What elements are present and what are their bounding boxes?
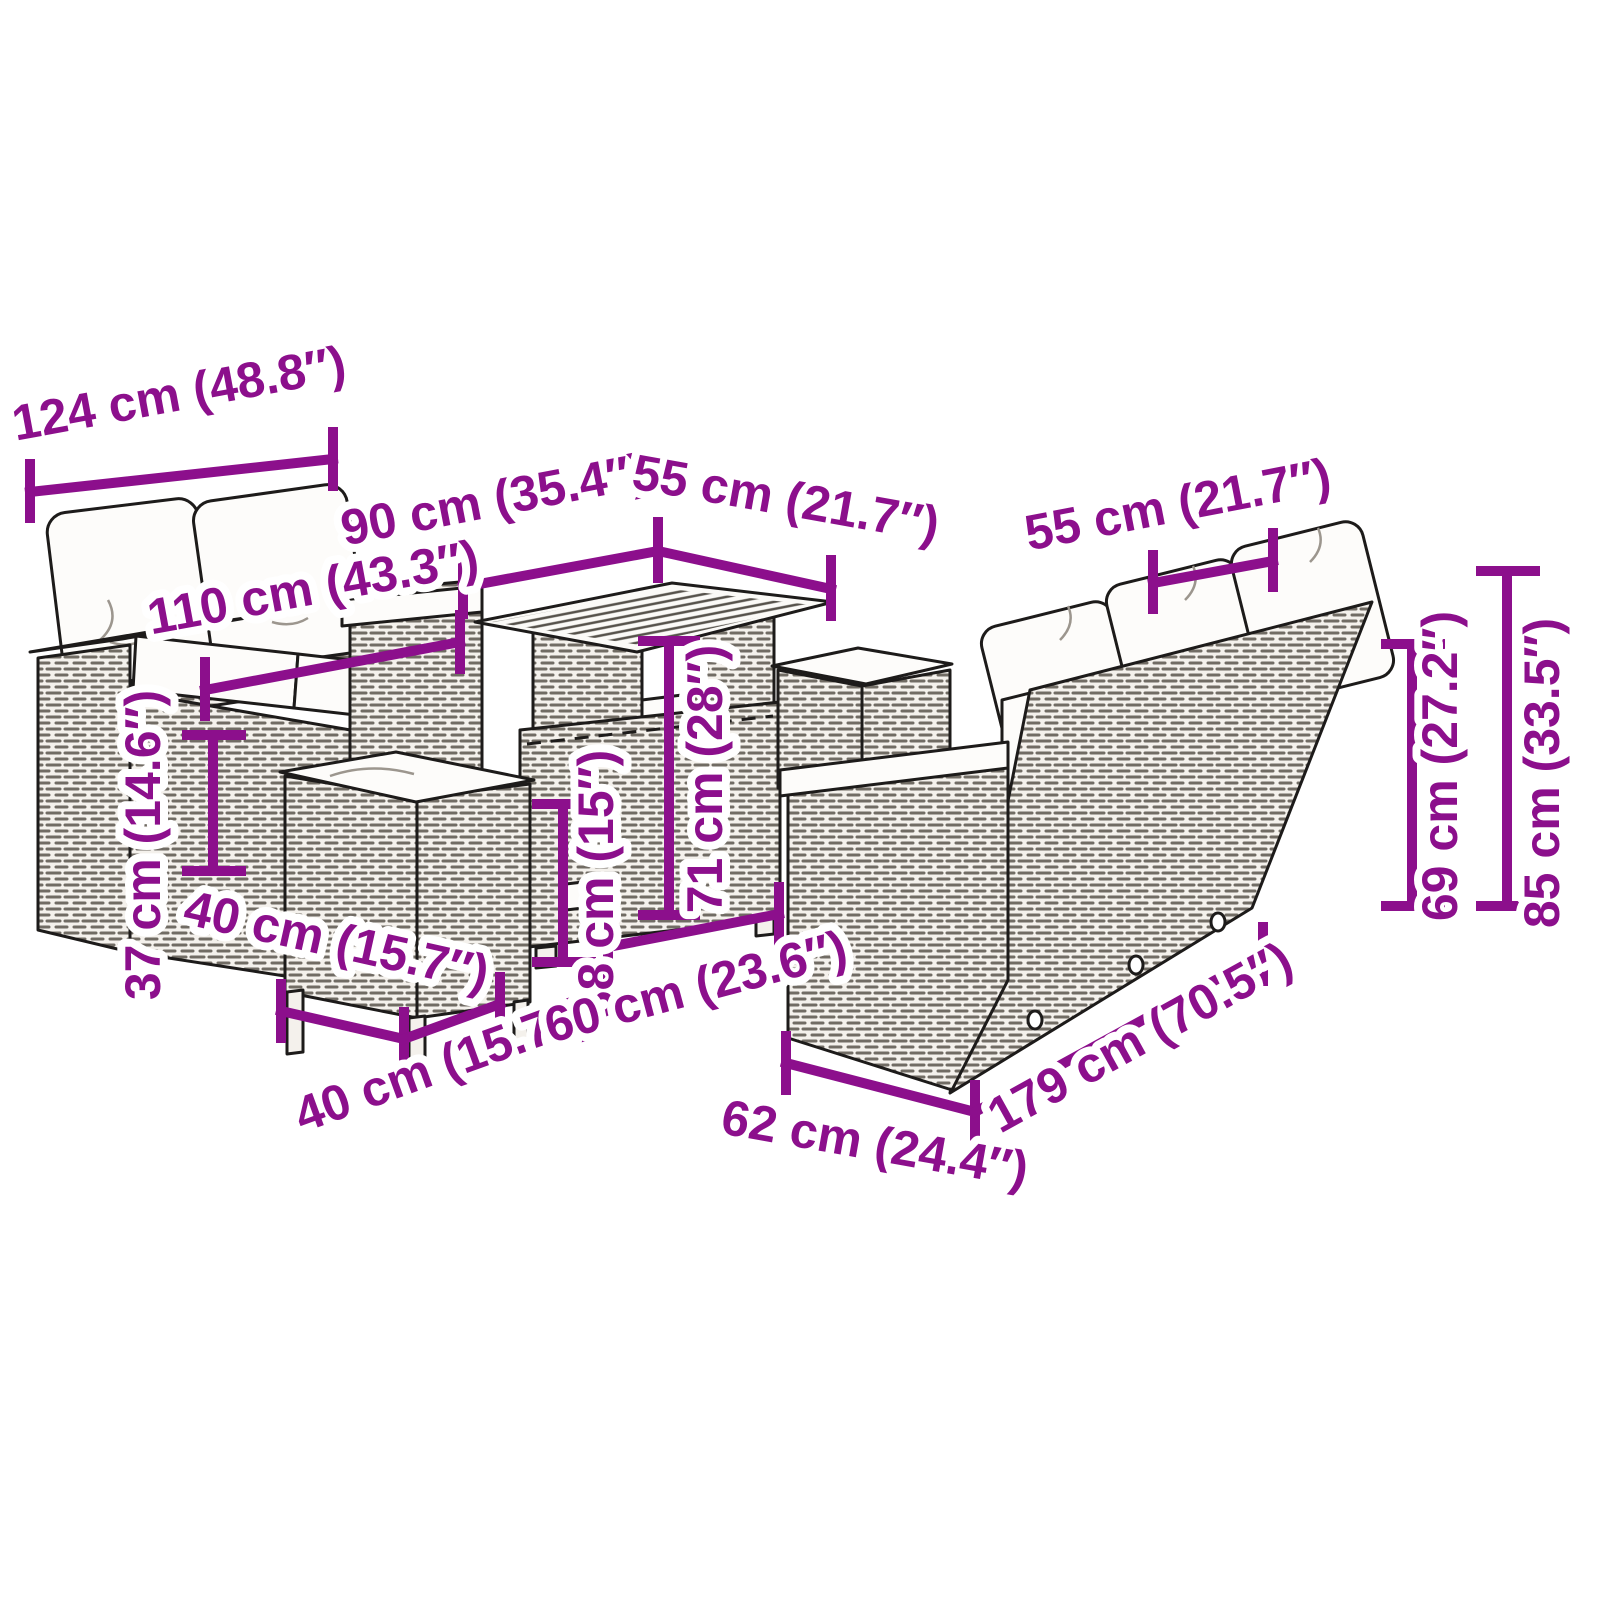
drain-hole [1211,913,1225,931]
dim-label-sofa3-total-height: 85 cm (33.5″) [1514,618,1570,928]
product-dimension-diagram: 124 cm (48.8″) 110 cm (43.3″) 90 cm (35.… [0,0,1600,1600]
sofa-armrest-panel [788,745,1008,1090]
dim-label-table-height-low: 38 cm (15″) [568,750,624,1019]
dim-label-sofa3-back-height: 69 cm (27.2″) [1412,611,1468,921]
dim-label-sofa2-seat-height: 37 cm (14.6″) [115,690,171,1000]
drain-hole [1028,1011,1042,1029]
dim-label-sofa2-total-width: 124 cm (48.8″) [8,335,351,452]
dim-label-table-width: 55 cm (21.7″) [628,444,943,553]
dim-label-table-length: 90 cm (35.4″) [336,442,651,556]
drain-hole [1129,956,1143,974]
dim-label-table-height-high: 71 cm (28″) [677,645,733,914]
stool-leg [287,990,303,1054]
three-seater-sofa [780,518,1397,1093]
dimension-diagram-canvas: 124 cm (48.8″) 110 cm (43.3″) 90 cm (35.… [0,0,1600,1600]
